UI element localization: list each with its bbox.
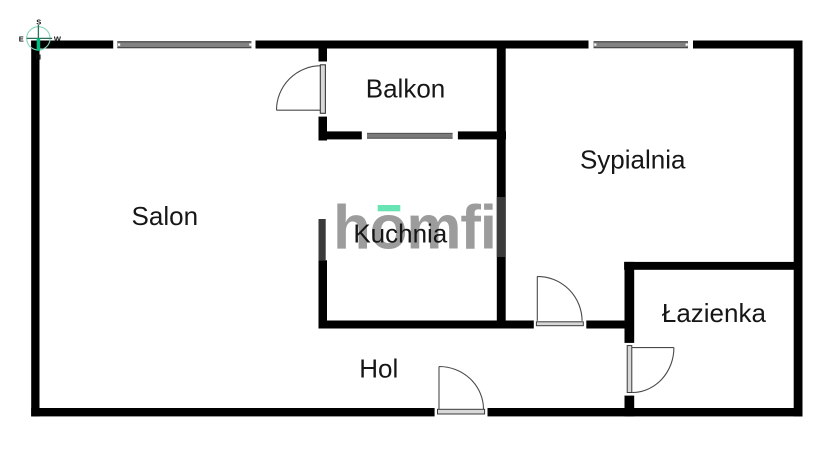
svg-text:N: N xyxy=(36,53,41,62)
svg-text:E: E xyxy=(19,34,24,43)
svg-text:Sypialnia: Sypialnia xyxy=(580,144,686,174)
svg-text:Salon: Salon xyxy=(132,201,199,231)
svg-text:Łazienka: Łazienka xyxy=(662,298,767,328)
svg-text:Kuchnia: Kuchnia xyxy=(353,219,447,249)
svg-text:Balkon: Balkon xyxy=(366,74,446,104)
svg-text:W: W xyxy=(54,35,62,44)
svg-text:S: S xyxy=(36,17,41,26)
svg-text:Hol: Hol xyxy=(359,354,398,384)
